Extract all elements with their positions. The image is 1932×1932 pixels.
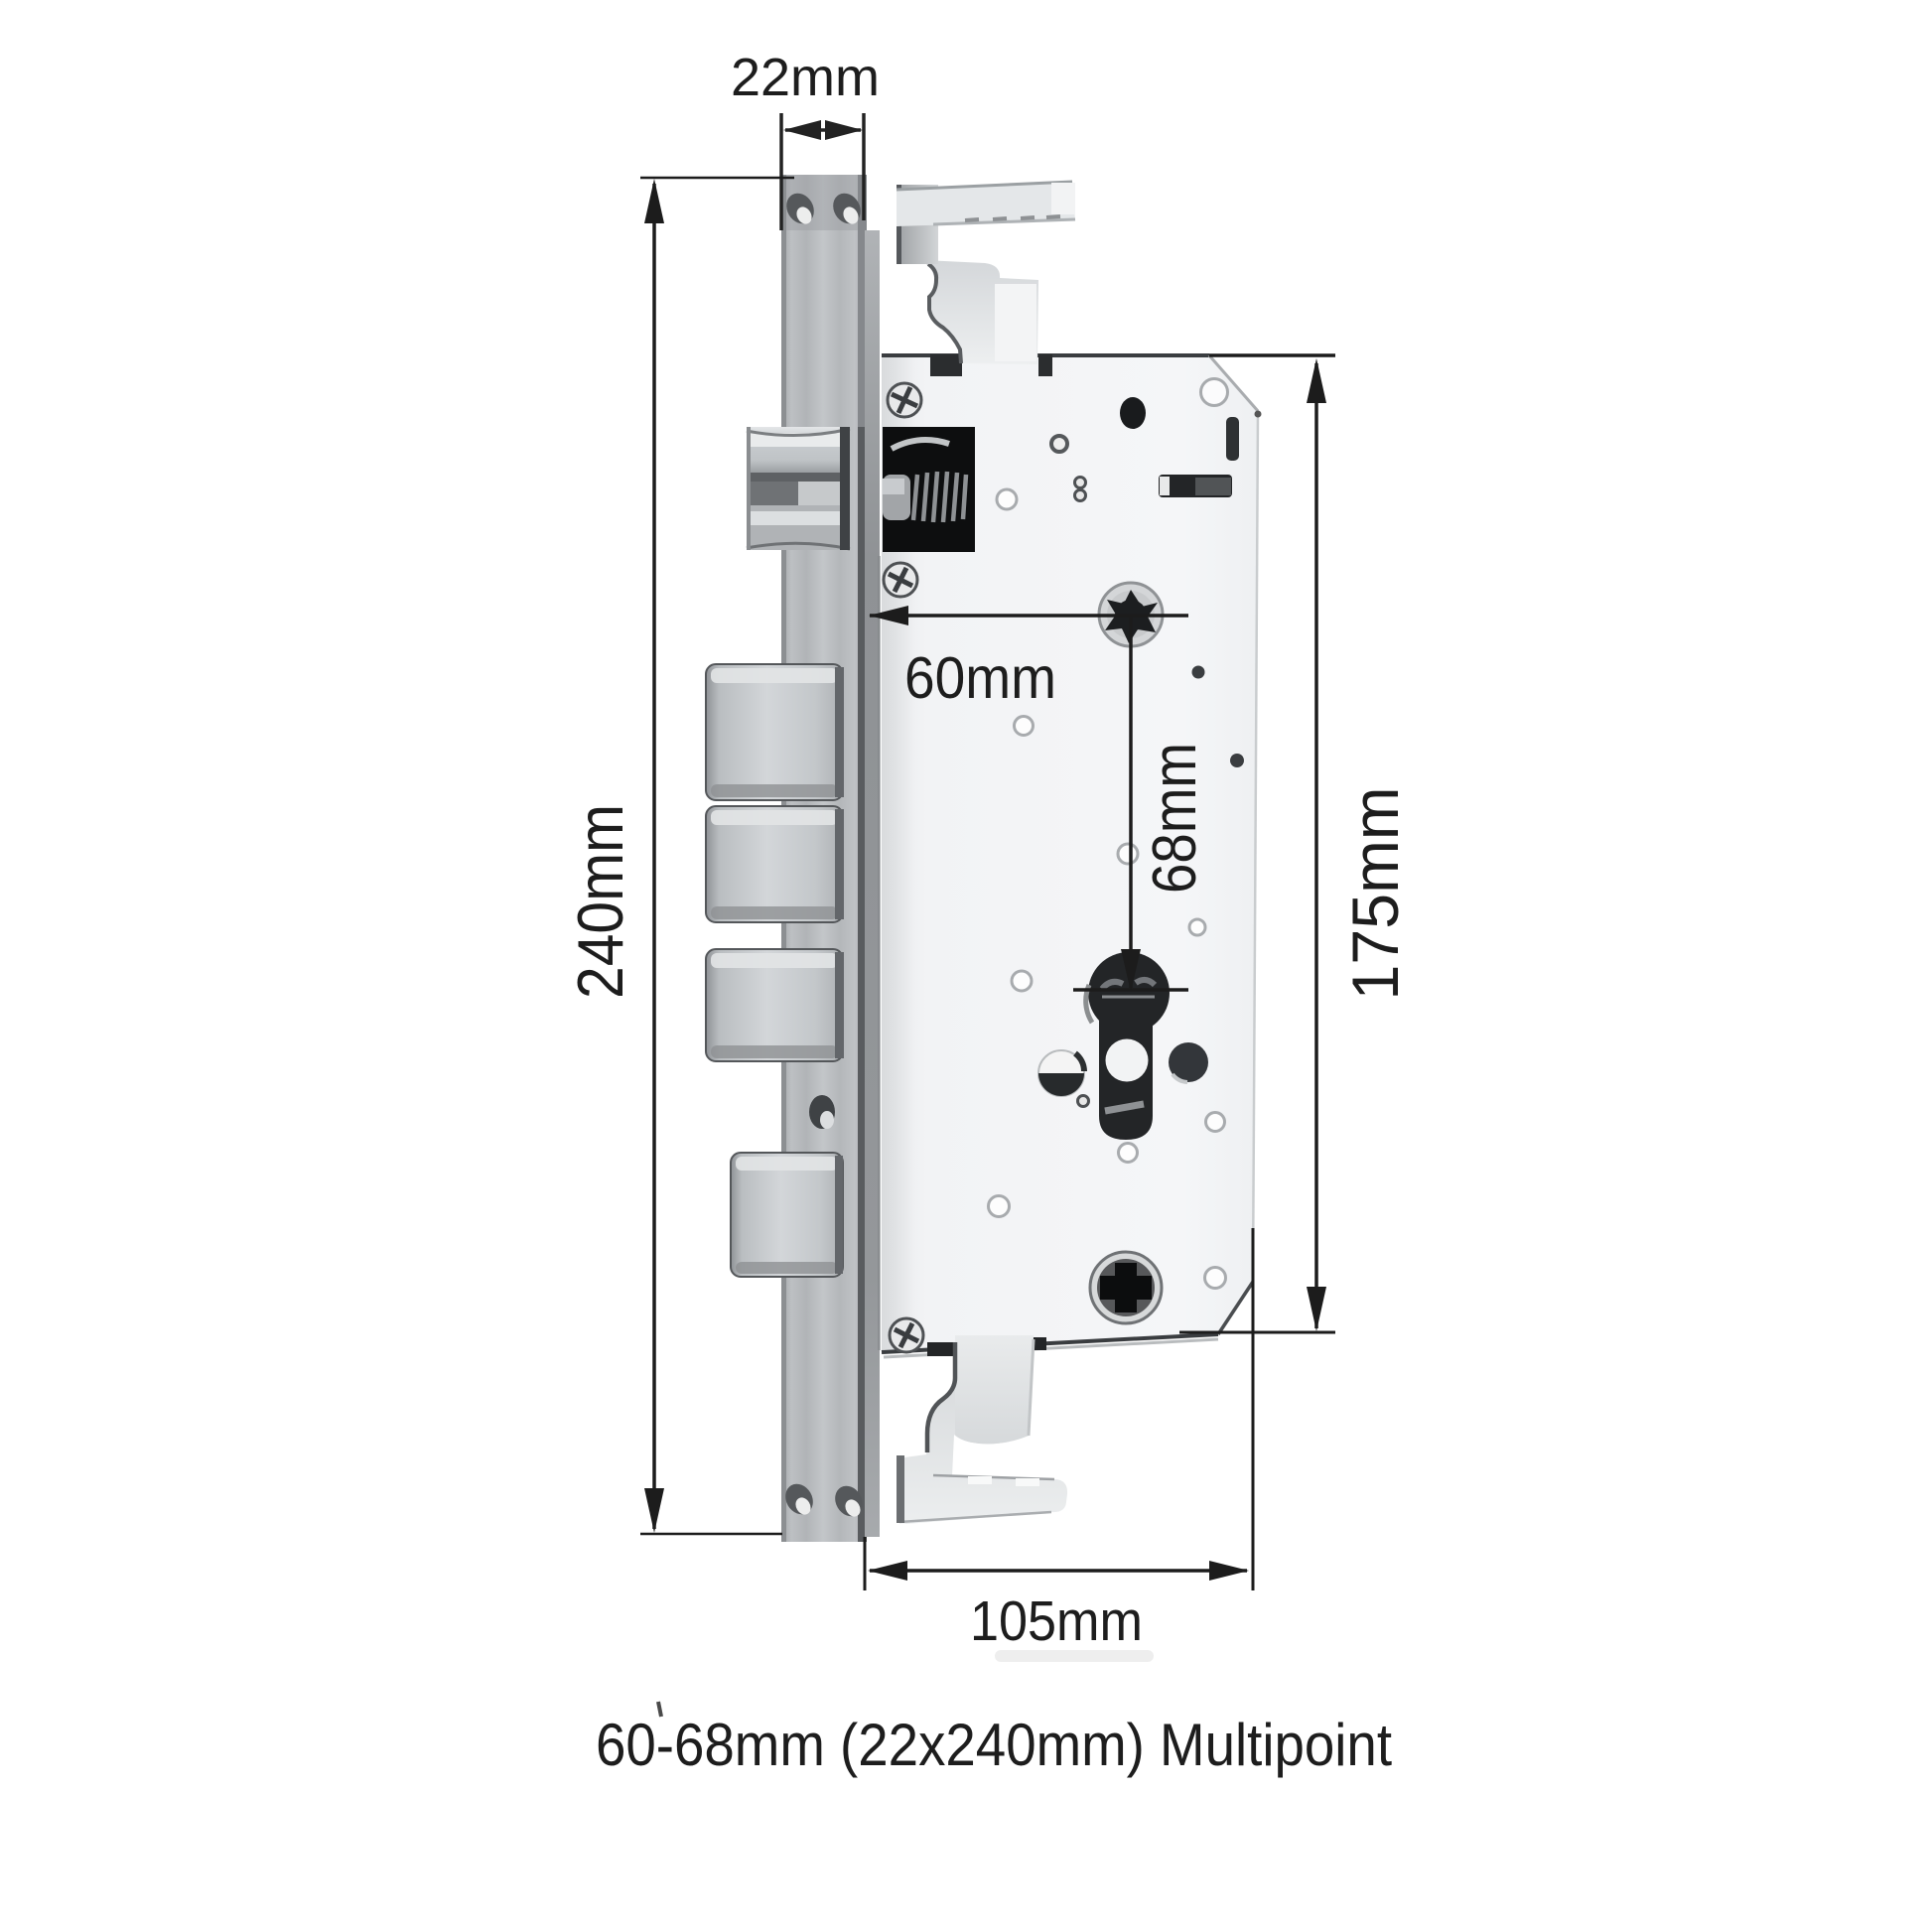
svg-text:60mm: 60mm xyxy=(904,645,1056,711)
svg-text:240mm: 240mm xyxy=(564,804,636,999)
svg-text:22mm: 22mm xyxy=(731,48,880,107)
svg-text:68mm: 68mm xyxy=(1141,743,1209,894)
svg-text:105mm: 105mm xyxy=(970,1589,1143,1653)
svg-text:175mm: 175mm xyxy=(1338,787,1412,1001)
svg-text:60-68mm (22x240mm) Multipoint: 60-68mm (22x240mm) Multipoint xyxy=(596,1712,1392,1778)
